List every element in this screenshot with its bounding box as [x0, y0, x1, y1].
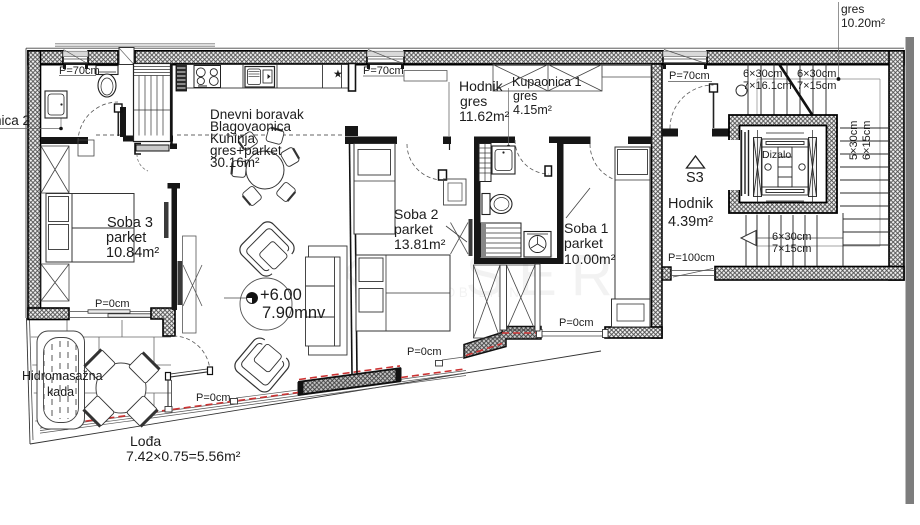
svg-text:7×15cm: 7×15cm	[772, 243, 811, 255]
svg-text:7×16.1cm: 7×16.1cm	[743, 80, 792, 92]
svg-text:Soba 3: Soba 3	[107, 215, 153, 231]
svg-text:parket: parket	[106, 230, 146, 246]
svg-text:parket: parket	[394, 221, 433, 237]
svg-text:4.39m²: 4.39m²	[668, 214, 713, 230]
svg-text:kada: kada	[47, 385, 74, 399]
svg-text:Hodnik: Hodnik	[668, 196, 714, 212]
svg-text:7.42×0.75=5.56m²: 7.42×0.75=5.56m²	[126, 448, 241, 464]
svg-text:nica 2: nica 2	[0, 113, 30, 128]
svg-text:6×15cm: 6×15cm	[861, 121, 873, 160]
svg-text:Dizalo: Dizalo	[762, 149, 791, 161]
svg-text:6×30cm: 6×30cm	[743, 68, 782, 80]
svg-text:P=0cm: P=0cm	[196, 392, 231, 404]
svg-text:13.81m²: 13.81m²	[394, 236, 446, 252]
svg-text:4.15m²: 4.15m²	[513, 103, 552, 117]
svg-text:★: ★	[333, 69, 343, 81]
svg-text:10.84m²: 10.84m²	[106, 245, 159, 261]
svg-text:P=0cm: P=0cm	[95, 298, 130, 310]
svg-text:Soba 1: Soba 1	[564, 220, 609, 236]
svg-text:Hodnik: Hodnik	[459, 78, 504, 94]
svg-text:P=70cm: P=70cm	[363, 65, 404, 77]
svg-text:P=0cm: P=0cm	[407, 346, 442, 358]
svg-text:P=100cm: P=100cm	[668, 252, 715, 264]
svg-text:6×30cm: 6×30cm	[772, 231, 811, 243]
svg-text:10.00m²: 10.00m²	[564, 251, 616, 267]
svg-text:10.20m²: 10.20m²	[841, 16, 885, 30]
svg-text:Kupaonica 1: Kupaonica 1	[512, 75, 582, 89]
svg-text:7.90mnv: 7.90mnv	[262, 304, 326, 322]
svg-text:P=0cm: P=0cm	[559, 317, 594, 329]
svg-text:+6.00: +6.00	[260, 286, 302, 304]
svg-text:P=70cm: P=70cm	[669, 70, 710, 82]
svg-text:Lođa: Lođa	[130, 433, 161, 449]
svg-text:parket: parket	[564, 235, 603, 251]
svg-text:7×15cm: 7×15cm	[797, 80, 836, 92]
svg-text:5×30cm: 5×30cm	[848, 121, 860, 160]
svg-text:S3: S3	[686, 170, 704, 186]
svg-text:gres: gres	[513, 89, 537, 103]
svg-text:Hidromasažna: Hidromasažna	[22, 369, 103, 383]
svg-text:30.16m²: 30.16m²	[210, 155, 260, 170]
svg-text:gres: gres	[841, 2, 864, 16]
svg-text:Soba 2: Soba 2	[394, 206, 439, 222]
svg-text:6×30cm: 6×30cm	[797, 68, 836, 80]
svg-text:gres: gres	[460, 93, 487, 109]
svg-text:11.62m²: 11.62m²	[459, 108, 510, 124]
